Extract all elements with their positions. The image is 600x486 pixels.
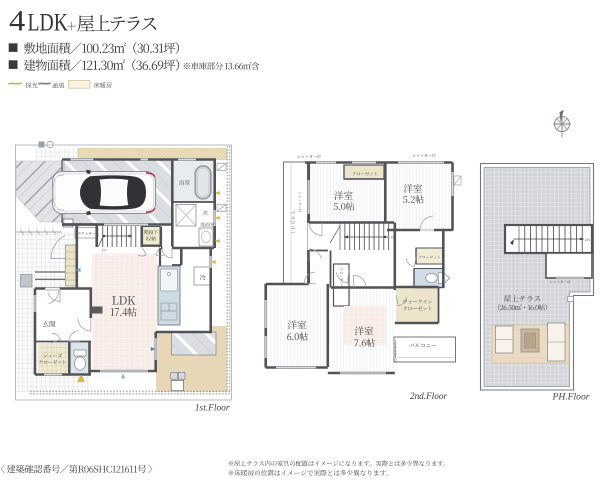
svg-text:4: 4 <box>9 5 25 38</box>
svg-text:PH.Floor: PH.Floor <box>551 391 589 402</box>
svg-text:LDK: LDK <box>28 10 68 37</box>
svg-text:2nd.Floor: 2nd.Floor <box>410 391 447 401</box>
svg-text:1st.Floor: 1st.Floor <box>195 404 230 414</box>
